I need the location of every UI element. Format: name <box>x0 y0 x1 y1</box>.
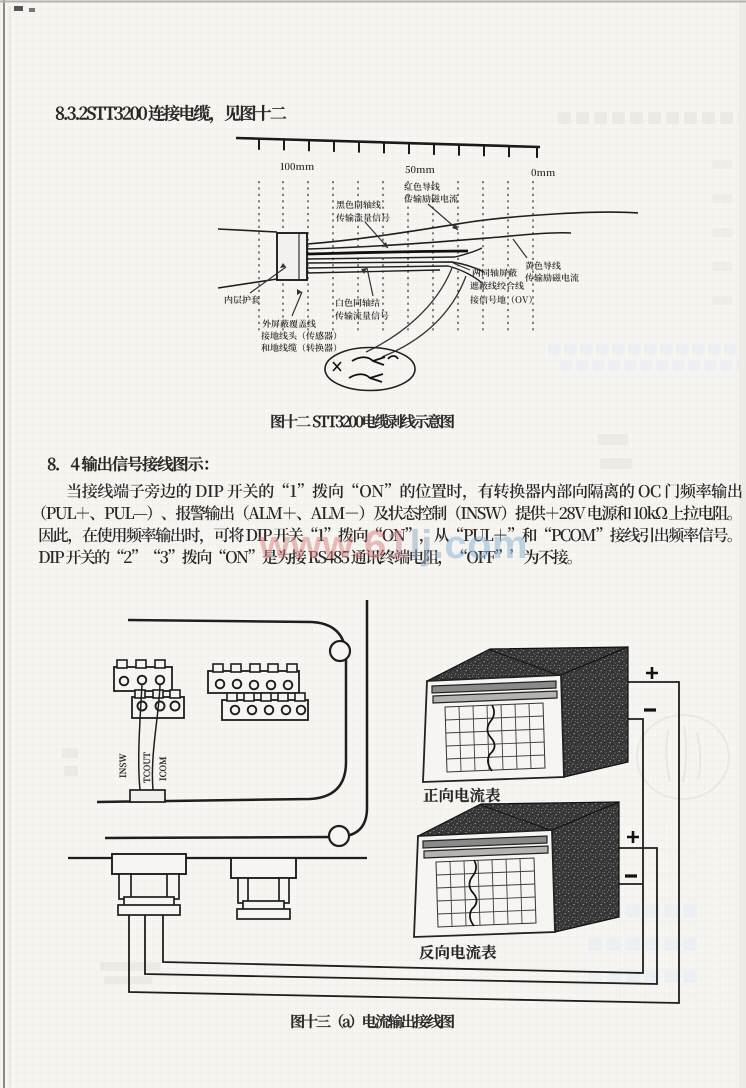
svg-text:www.61lj.com: www.61lj.com <box>258 523 528 567</box>
